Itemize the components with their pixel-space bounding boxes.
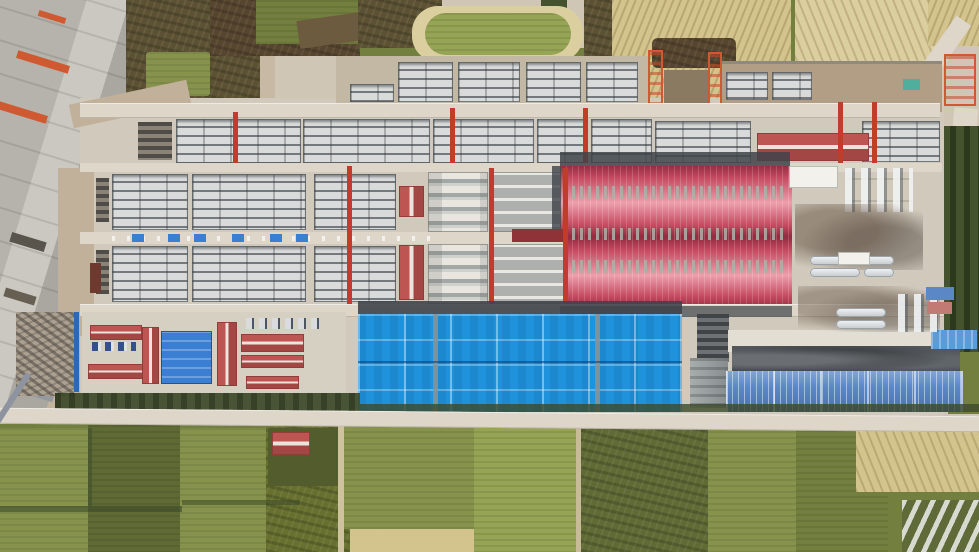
aggregate-piles [732, 346, 960, 374]
cement-silo [836, 320, 886, 329]
casting-beds [492, 244, 564, 304]
blue-roof-seam [358, 361, 682, 363]
girder-stack [726, 72, 768, 100]
girder-stack [433, 119, 534, 163]
gray-shed [690, 358, 728, 408]
silo-canopy [838, 252, 870, 265]
girder-stack [303, 119, 430, 163]
greenhouse-rows [902, 500, 979, 552]
farmhouse [272, 432, 310, 455]
gantry-crane-rail [347, 166, 352, 308]
girder-stack [458, 62, 520, 102]
gantry-crane-rail [233, 112, 238, 170]
girder-stack [314, 246, 396, 302]
field-patch [0, 428, 88, 552]
trucks-row [92, 342, 136, 351]
aerial-photo [0, 0, 979, 552]
blue-pad [132, 234, 144, 242]
cement-silo [836, 308, 886, 317]
dorm-building [246, 376, 299, 389]
boundary-wall [722, 61, 942, 64]
girder-stack [586, 62, 638, 102]
haul-road-top [80, 103, 940, 118]
blue-pad [296, 234, 308, 242]
blue-workshop-roof [358, 314, 682, 412]
hedge-row [0, 506, 182, 512]
dark-scrub-strip [584, 0, 612, 62]
gantry-crane-rail [489, 168, 494, 314]
dorm-building [142, 327, 159, 384]
gantry-span-dirt [664, 70, 708, 106]
blue-pad [168, 234, 180, 242]
blue-office-building [161, 331, 212, 384]
girder-stack [526, 62, 581, 102]
gantry-crane-tower [944, 54, 976, 106]
gantry-crane-rail [838, 102, 843, 170]
blue-roof-separator [595, 314, 600, 412]
girder-stack [398, 62, 453, 102]
cement-silo [810, 268, 860, 277]
girder-stack [176, 119, 301, 163]
casting-beds [428, 244, 488, 304]
blue-roof-separator [433, 314, 438, 412]
cement-silo [864, 268, 894, 277]
blue-pad [232, 234, 244, 242]
skylight-band [564, 186, 786, 199]
equipment-column [697, 314, 729, 362]
gantry-crane-tower [648, 50, 663, 107]
dorm-building [241, 355, 304, 368]
field-patch [581, 425, 708, 552]
skylight-band [564, 228, 786, 240]
field-patch-tan [856, 428, 979, 492]
dorm-building [217, 322, 237, 386]
gantry-crane-rail [563, 168, 568, 308]
dorm-building [241, 334, 304, 352]
field-patch [344, 425, 474, 529]
girder-stack [192, 246, 306, 302]
girder-stack [112, 246, 188, 302]
field-patch [474, 425, 576, 552]
blue-pad [270, 234, 282, 242]
blue-pad [194, 234, 206, 242]
material-clutter [138, 122, 172, 160]
field-patch [180, 428, 266, 552]
gantry-crane-rail [450, 108, 455, 168]
red-shed [399, 245, 424, 300]
blue-fence [74, 312, 79, 392]
teal-shed [903, 79, 920, 90]
field-patch [88, 425, 180, 552]
field-patch-tan [350, 529, 476, 552]
hedge-row [88, 428, 92, 506]
dorm-building [90, 325, 142, 340]
blue-shed-small [931, 330, 977, 349]
girder-stack [112, 174, 188, 230]
gantry-crane-tower [708, 52, 722, 107]
girder-stack [314, 174, 396, 230]
red-shed [399, 186, 424, 217]
round-field-inner [425, 13, 571, 55]
casting-beds [428, 172, 488, 232]
blue-shed-small [926, 287, 954, 300]
batch-plant-warehouse [789, 166, 838, 188]
dorm-building [88, 364, 144, 379]
material-clutter [96, 178, 109, 222]
maroon-shed [512, 229, 565, 242]
hedge-row [182, 500, 300, 505]
field-patch [708, 425, 796, 552]
skylight-band [564, 260, 786, 273]
pink-shed-small [927, 302, 952, 314]
red-truck [90, 263, 101, 293]
girder-stack [772, 72, 812, 100]
gantry-crane-rail [872, 102, 877, 170]
girder-stack [192, 174, 306, 230]
girder-stack [350, 84, 394, 102]
parked-cars-row [246, 318, 324, 329]
